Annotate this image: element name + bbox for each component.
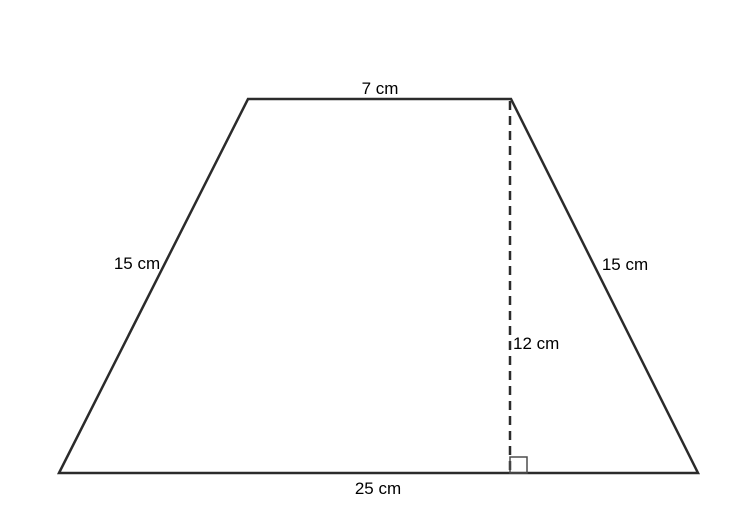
trapezoid-outline (59, 99, 698, 473)
label-top-base: 7 cm (362, 79, 399, 98)
label-bottom-base: 25 cm (355, 479, 401, 498)
label-height: 12 cm (513, 334, 559, 353)
trapezoid-diagram: 7 cm 15 cm 15 cm 12 cm 25 cm (0, 0, 750, 518)
label-left-side: 15 cm (114, 254, 160, 273)
right-angle-marker-icon (510, 457, 527, 473)
label-right-side: 15 cm (602, 255, 648, 274)
geometry-figure: 7 cm 15 cm 15 cm 12 cm 25 cm (0, 0, 750, 518)
